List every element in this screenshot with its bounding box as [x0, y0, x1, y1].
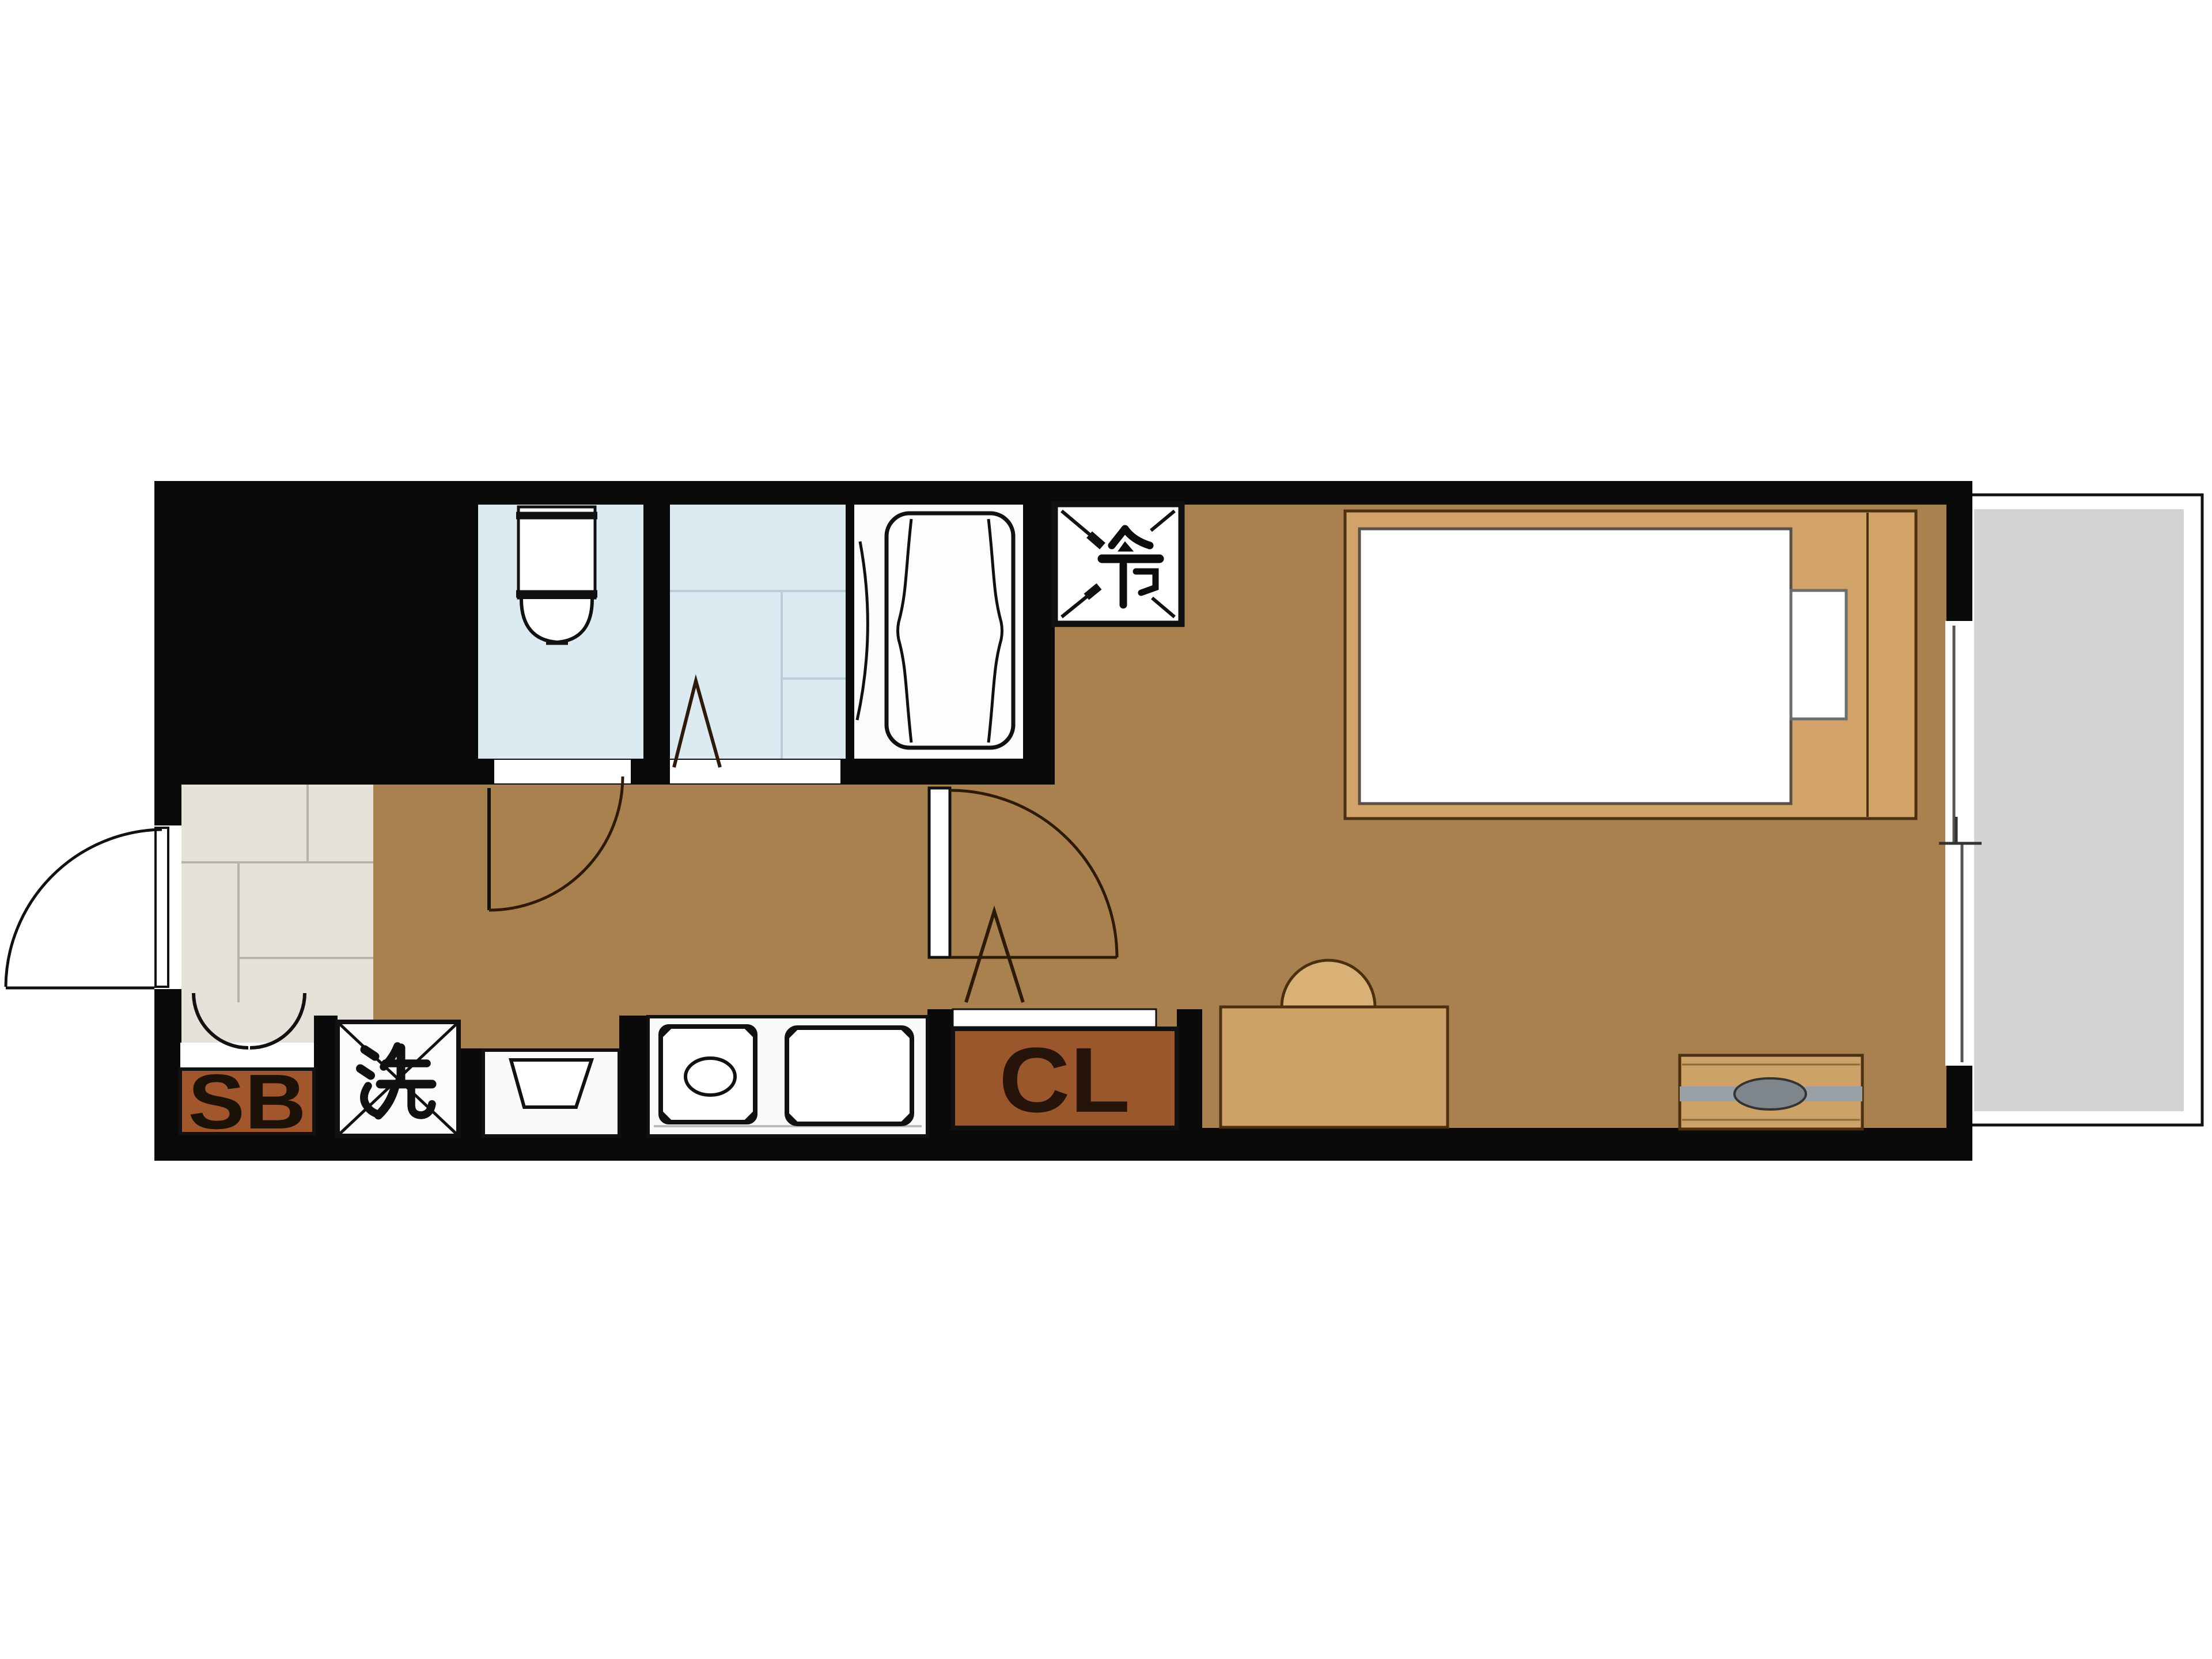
- svg-text:SB: SB: [188, 1058, 306, 1145]
- svg-text:CL: CL: [999, 1028, 1130, 1131]
